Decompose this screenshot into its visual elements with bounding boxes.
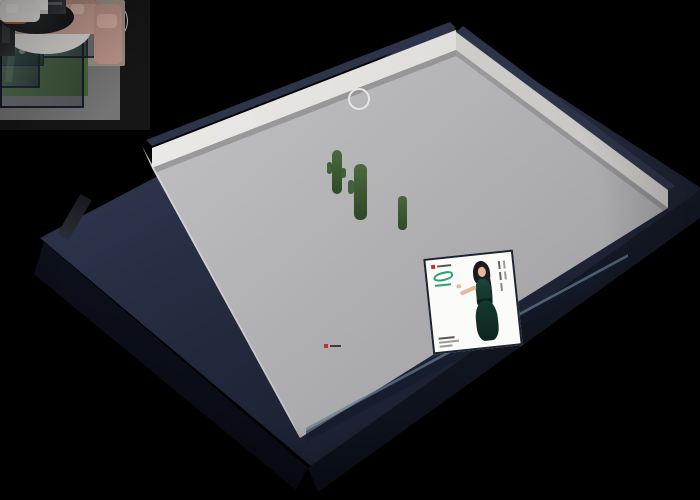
vignette <box>0 0 700 500</box>
showroom-isometric-render <box>0 0 700 500</box>
